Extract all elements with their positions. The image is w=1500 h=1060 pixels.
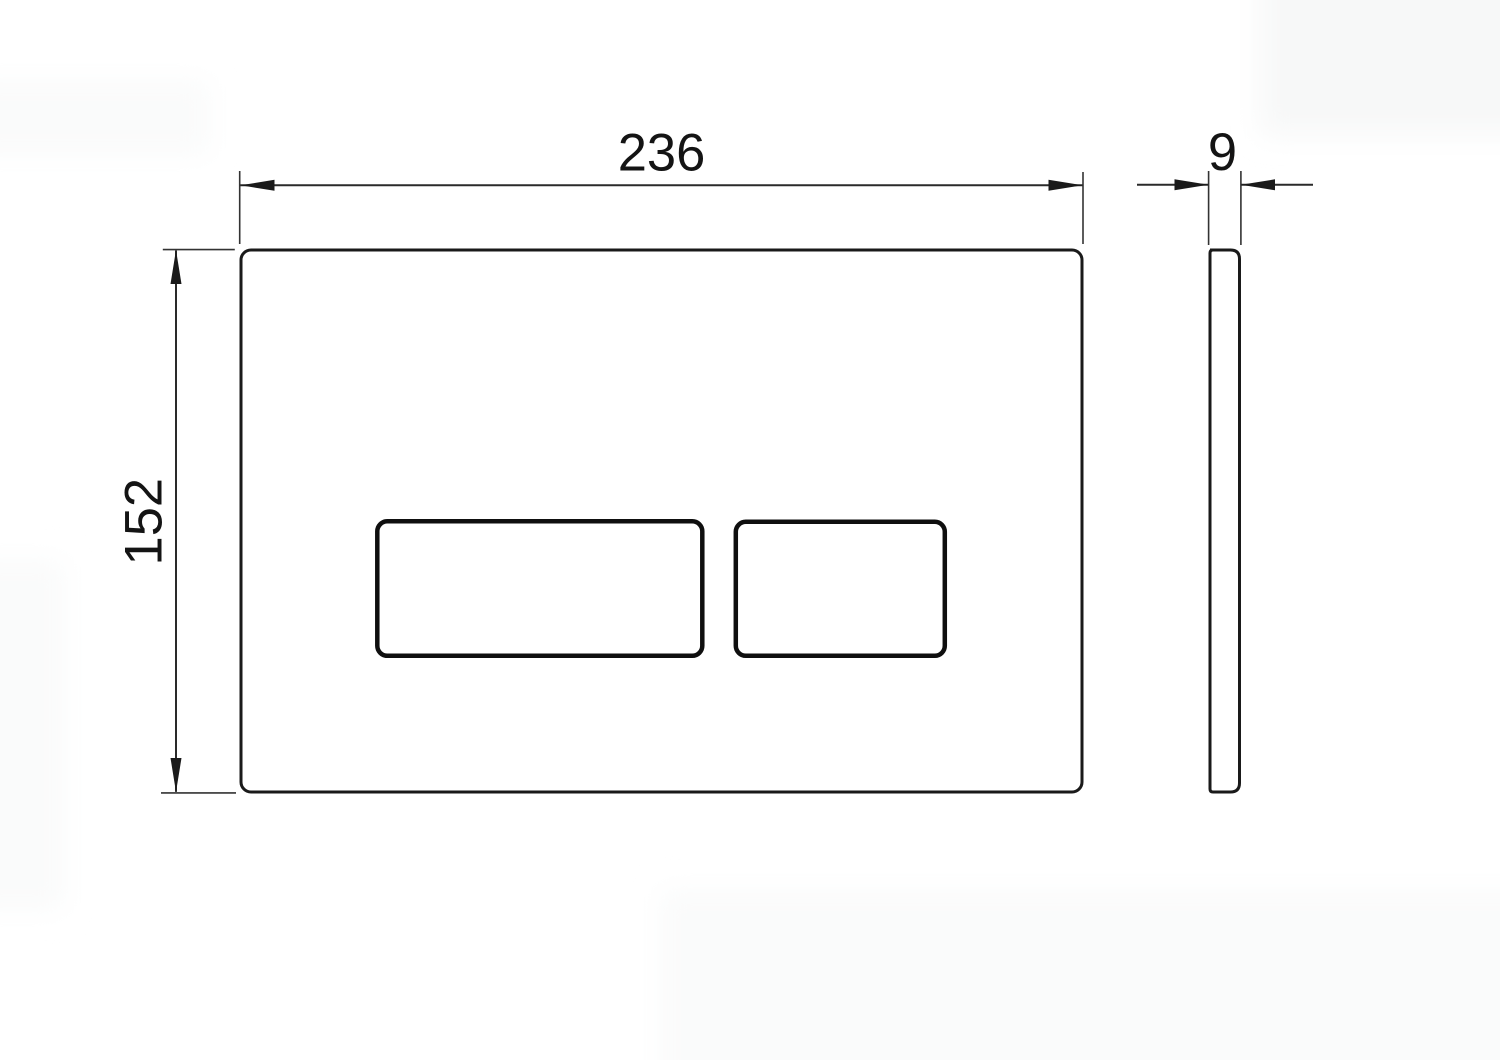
svg-text:236: 236 [618,124,706,183]
svg-text:9: 9 [1208,123,1237,182]
svg-text:152: 152 [115,478,174,566]
